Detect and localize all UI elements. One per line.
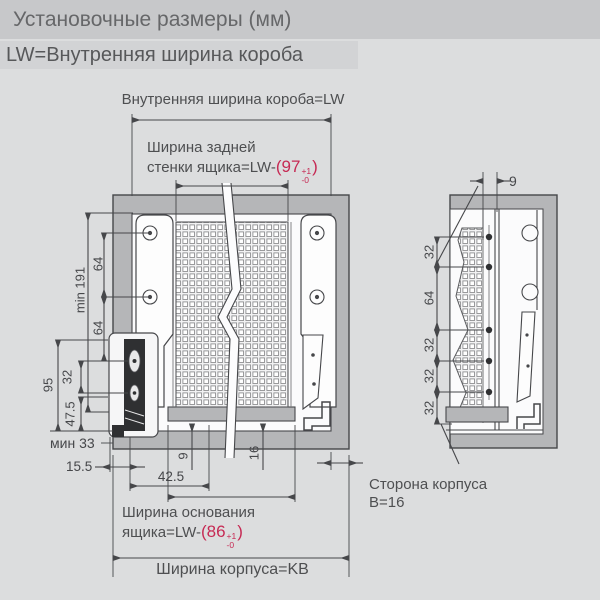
side-dim-32-1: 32 — [422, 245, 437, 259]
side-caption-line2: B=16 — [369, 494, 404, 511]
tolerance-86-close: ) — [237, 522, 243, 541]
dim-15-5: 15.5 — [66, 459, 92, 474]
tolerance-97-stack: +1-0 — [301, 167, 311, 184]
side-dim-32-4: 32 — [422, 401, 437, 415]
dim-64-top: 64 — [91, 257, 106, 271]
inner-width-label: Внутренняя ширина короба=LW — [118, 91, 348, 108]
dim-9: 9 — [176, 452, 191, 459]
dim-64-bottom: 64 — [91, 321, 106, 335]
installation-drawing — [0, 0, 600, 600]
side-dim-64: 64 — [422, 291, 437, 305]
body-width-label: Ширина корпуса=KB — [130, 561, 335, 579]
tolerance-97-close: ) — [312, 157, 318, 176]
tolerance-86-open: (86 — [201, 522, 226, 541]
dim-min-33: мин 33 — [50, 435, 95, 451]
side-caption-line1: Сторона корпуса — [369, 476, 487, 493]
tolerance-86-stack: +1-0 — [227, 532, 237, 549]
back-wall-label-line1: Ширина задней — [147, 139, 256, 156]
page: Установочные размеры (мм) LW=Внутренняя … — [0, 0, 600, 600]
side-dim-9: 9 — [509, 173, 517, 189]
left-slide-mechanism — [109, 333, 158, 437]
dim-95: 95 — [41, 378, 56, 392]
back-wall-label-line2: стенки ящика=LW-(97+1-0) — [147, 157, 318, 184]
base-width-label-line2: ящика=LW-(86+1-0) — [122, 522, 243, 549]
tolerance-97-open: (97 — [276, 157, 301, 176]
side-dim-32-3: 32 — [422, 369, 437, 383]
dim-32: 32 — [60, 370, 75, 384]
base-width-label-line1: Ширина основания — [122, 504, 255, 521]
dim-16: 16 — [247, 446, 262, 460]
dim-47-5: 47.5 — [63, 401, 78, 426]
dim-min-191: min 191 — [73, 267, 88, 313]
dim-42-5: 42.5 — [148, 469, 194, 484]
side-view-drawing — [437, 172, 557, 464]
side-drawer-bottom — [446, 407, 508, 422]
side-dim-32-2: 32 — [422, 338, 437, 352]
